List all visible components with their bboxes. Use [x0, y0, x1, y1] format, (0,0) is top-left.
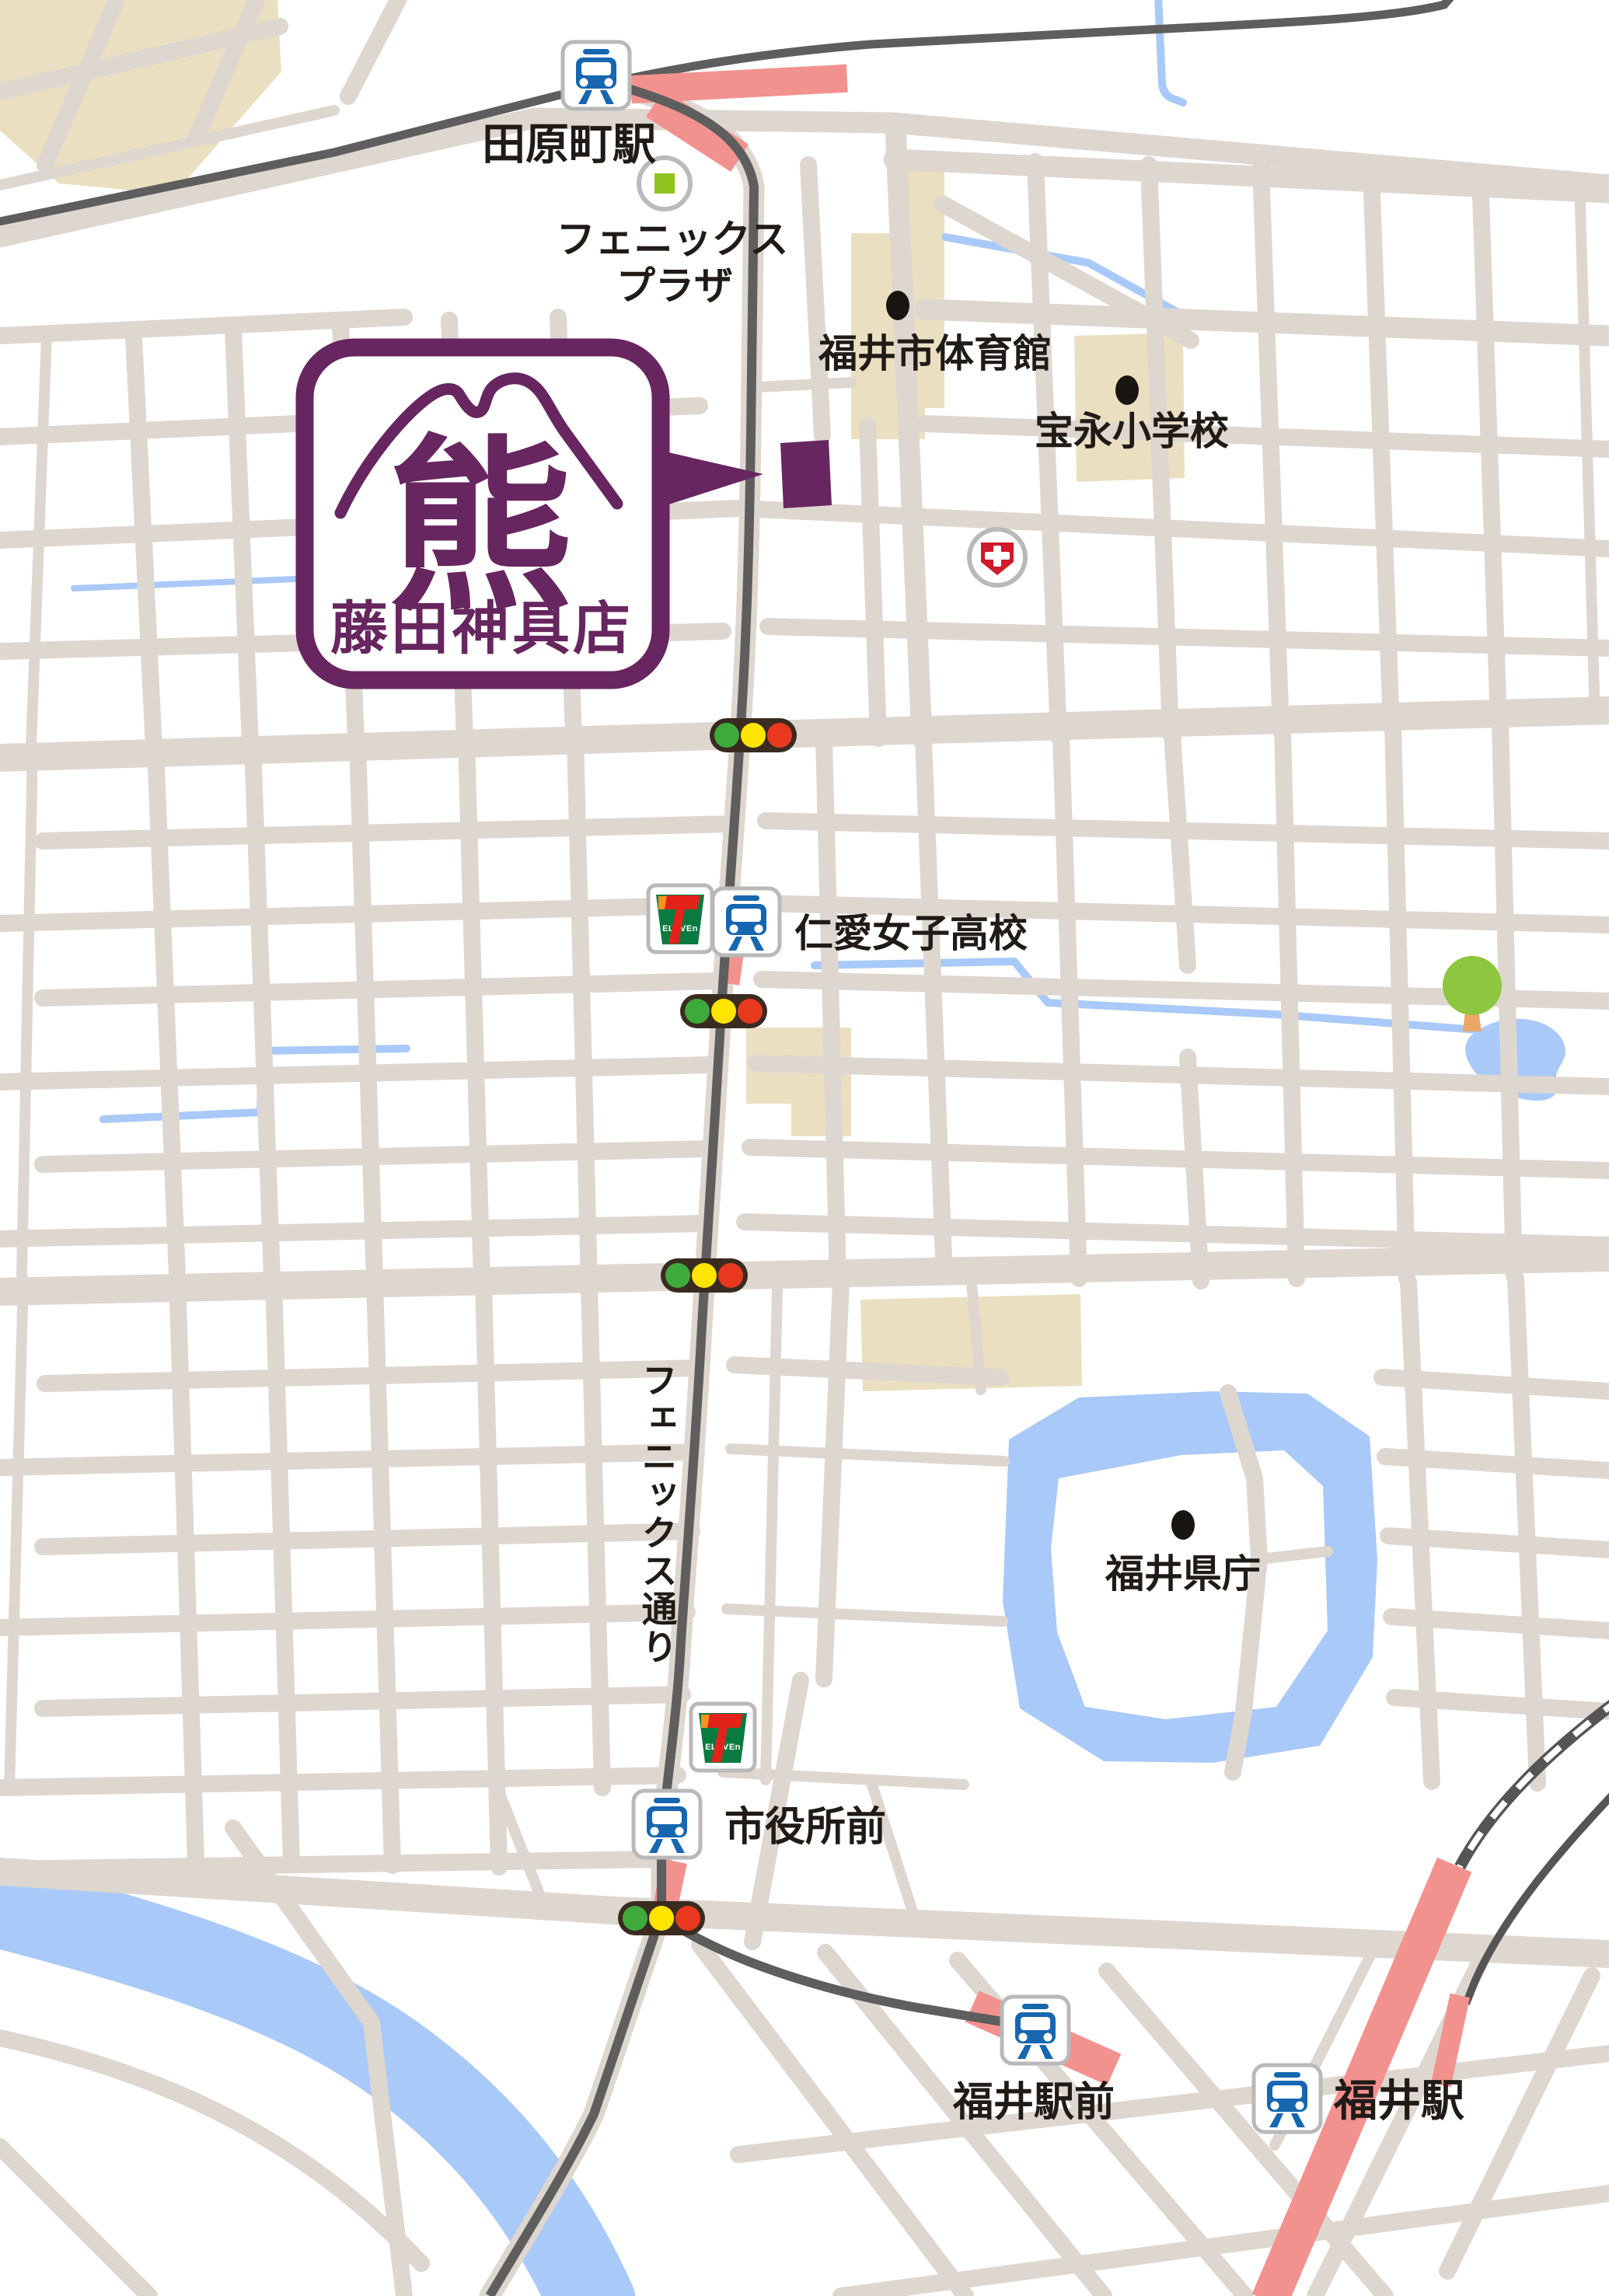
traffic-light-icon: [661, 1258, 748, 1293]
shop-name: 藤田神具店: [330, 598, 633, 661]
poi-dot-icon: [1115, 375, 1139, 405]
hoei-elementary-label: 宝永小学校: [1035, 410, 1229, 453]
train-icon: [1254, 2065, 1321, 2132]
poi-dot-icon: [1171, 1510, 1195, 1540]
stream-west: [74, 579, 295, 588]
phoenix-plaza-label-line2: プラザ: [616, 264, 733, 308]
traffic-light-icon: [618, 1901, 705, 1935]
shiyakusho-mae-label: 市役所前: [724, 1805, 886, 1850]
seven-eleven-icon: [691, 1704, 755, 1771]
city-gymnasium-label: 福井市体育館: [818, 332, 1052, 375]
stream-north: [1158, 0, 1183, 103]
tawaramachi-station-label: 田原町駅: [482, 121, 656, 169]
traffic-light-icon: [680, 994, 767, 1028]
tree-icon: [1443, 956, 1502, 1031]
traffic-light-icon: [710, 718, 797, 752]
train-icon: [713, 888, 780, 955]
access-map-canvas: ELEVEn: [0, 0, 1609, 2296]
jinai-girls-high-school-label: 仁愛女子高校: [794, 912, 1028, 955]
access-map: ELEVEn: [0, 0, 1609, 2296]
train-icon: [563, 42, 630, 109]
phoenix-street-label: フェニックス通り: [637, 1362, 678, 1666]
train-icon: [633, 1791, 700, 1858]
fukui-ekimae-label: 福井駅前: [952, 2080, 1115, 2125]
seven-eleven-icon: [648, 885, 712, 952]
hospital-icon: [969, 529, 1025, 585]
fukui-station-label: 福井駅: [1333, 2078, 1464, 2126]
phoenix-plaza-label-line1: フェニックス: [557, 218, 789, 261]
prefectural-office-label: 福井県庁: [1105, 1552, 1261, 1596]
poi-dot-icon: [886, 291, 909, 320]
shop-location-marker: [780, 440, 832, 508]
train-icon: [1002, 1997, 1069, 2064]
